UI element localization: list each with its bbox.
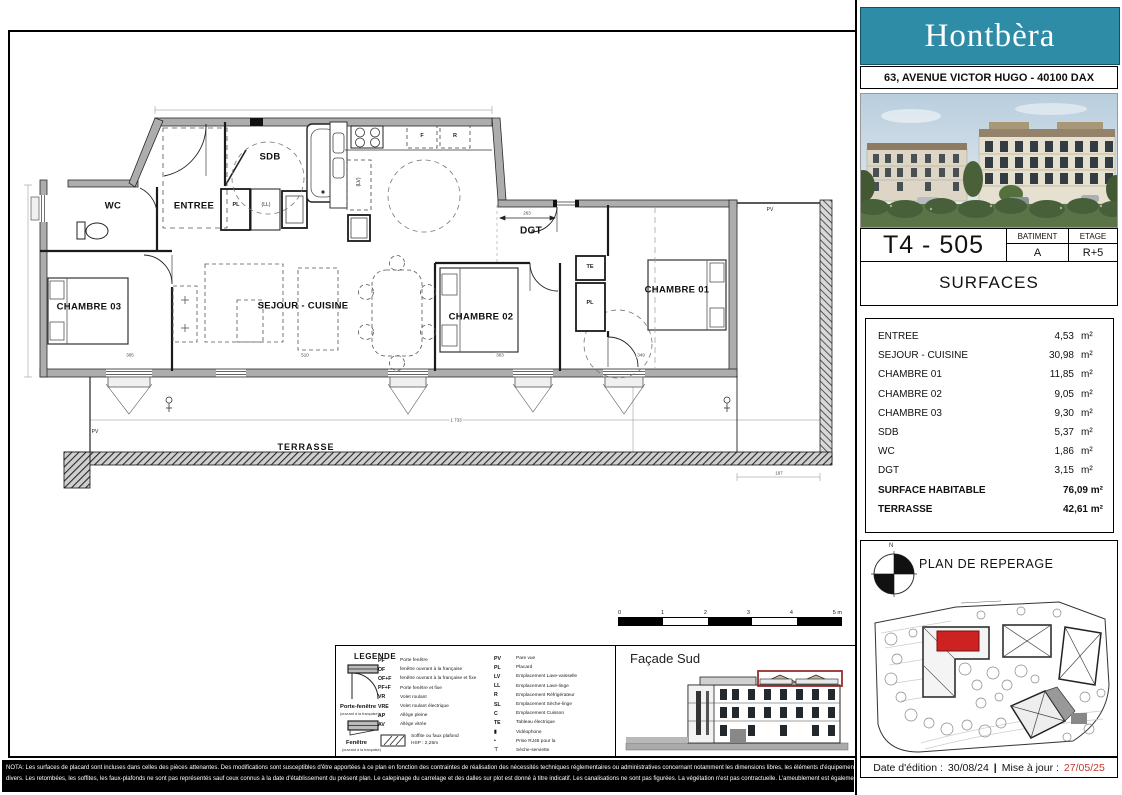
legend-item: AV Allège vitrée [378,720,493,729]
legend-abbr: OF+F [378,676,400,682]
surface-room-label: WC [878,446,1036,457]
dim-510: 510 [300,353,310,358]
surface-row: CHAMBRE 02 9,05 m² [878,385,1103,404]
tag-r: R [453,133,457,139]
legend-item: R Emplacement Réfrigérateur [494,691,612,700]
surface-room-label: CHAMBRE 01 [878,369,1036,380]
surface-value: 1,86 [1036,446,1074,457]
surface-row: SDB 5,37 m² [878,423,1103,442]
compass-icon [869,549,919,599]
legend-label: fenêtre ouvrant à la française [400,667,462,672]
scale-bar-segments [618,617,842,626]
surface-unit: m² [1074,369,1103,380]
surface-room-label: SDB [878,427,1036,438]
surface-value: 11,85 [1036,369,1074,380]
surface-unit: m² [1074,389,1103,400]
surface-unit: m² [1074,427,1103,438]
room-label-wc: WC [105,201,121,212]
legend-label: Volet roulant électrique [400,704,449,709]
tag-pl-sdb: PL [232,202,239,208]
legend-label: Sèche-serviette [516,748,549,753]
nota-line-2: divers. Les retombées, les soffites, les… [6,774,850,785]
facade-drawing [618,669,853,757]
legend-abbr: AV [378,722,400,728]
soffite-label: Soffite ou faux plafond [411,734,459,740]
legend-item: SL Emplacement Sèche-linge [494,700,612,709]
legend-label: Tableau électrique [516,720,555,725]
facade-section: Façade Sud [615,645,855,758]
floor-plan-drawing [0,0,855,600]
tag-pv-left: PV [92,429,99,435]
room-label-dgt: DGT [520,226,542,237]
legend-label: Volet roulant [400,695,427,700]
surface-value: 9,30 [1036,408,1074,419]
surface-value: 4,53 [1036,331,1074,342]
surfaces-totals: SURFACE HABITABLE 76,09 m² TERRASSE 42,6… [878,481,1103,519]
legend: LEGENDE Porte-fenêtre (ouvrant à la fran… [335,645,616,758]
legend-label: Emplacement Cuisson [516,711,564,716]
surface-row: DGT 3,15 m² [878,461,1103,480]
nota-line-1: NOTA: Les surfaces de placard sont inclu… [6,763,850,774]
legend-item: LV Emplacement Lave-vaisselle [494,672,612,681]
surface-row: CHAMBRE 03 9,30 m² [878,404,1103,423]
fenetre-sub: (ouvrant à la française) [342,748,381,752]
legend-abbr: ⊤ [494,747,516,753]
batiment-header: BATIMENT [1007,229,1069,244]
legend-label: fenêtre ouvrant à la française et fixe [400,676,476,681]
facade-title: Façade Sud [630,651,700,666]
legend-soffite: Soffite ou faux plafond HSP : 2,25m [380,734,459,747]
legend-label: Prise RJ45 pour la [516,739,555,744]
room-label-sejour: SEJOUR - CUISINE [258,301,349,312]
room-label-chambre01: CHAMBRE 01 [645,285,710,296]
legend-label: Allège vitrée [400,722,426,727]
legend-item: OF+F fenêtre ouvrant à la française et f… [378,674,493,683]
legend-item: PF Porte fenêtre [378,656,493,665]
dim-197: 197 [774,471,784,476]
surface-value: 3,15 [1036,465,1074,476]
legend-abbr: AP [378,713,400,719]
legend-item: PL Placard [494,663,612,672]
surface-room-label: SEJOUR - CUISINE [878,350,1036,361]
update-date: 27/05/25 [1064,762,1105,774]
surface-total-value: 76,09 m² [1043,485,1103,496]
brand-logo: Hontbèra [925,18,1056,55]
tag-pv-right: PV [767,207,774,213]
surface-value: 30,98 [1036,350,1074,361]
legend-item: PV Pare vue [494,654,612,663]
surface-room-label: CHAMBRE 02 [878,389,1036,400]
tag-lv: (LV) [356,177,362,186]
dim-305: 305 [125,353,135,358]
legend-abbr: VRE [378,704,400,710]
legend-label: Placard [516,665,532,670]
scale-tick-label: 2 [704,610,707,616]
surface-unit: m² [1074,350,1103,361]
legend-abbr: TE [494,720,516,726]
building-photo [860,93,1118,228]
legend-column-2: PV Pare vue PL Placard LV Emplacement La… [494,654,612,755]
surface-total-row: TERRASSE 42,61 m² [878,500,1103,519]
scale-bar: 012345 m [618,610,842,626]
legend-abbr: R [494,692,516,698]
edition-label: Date d'édition : [873,762,943,774]
surface-row: CHAMBRE 01 11,85 m² [878,365,1103,384]
room-label-sdb: SDB [260,152,281,163]
room-label-terrasse: TERRASSE [277,442,334,452]
soffite-hatch-icon [380,734,406,747]
legend-abbr: SL [494,702,516,708]
reperage-title: PLAN DE REPERAGE [919,557,1053,571]
surface-total-label: SURFACE HABITABLE [878,485,1043,496]
legend-abbr: LL [494,683,516,689]
unit-code: T4 - 505 [861,229,1007,261]
dim-263: 263 [522,211,532,216]
legend-label: Emplacement Lave-vaisselle [516,674,577,679]
legend-item: VRE Volet roulant électrique [378,702,493,711]
site-plan [861,593,1117,755]
surface-room-label: DGT [878,465,1036,476]
room-label-entree: ENTREE [174,201,214,212]
fenetre-label: Fenêtre [346,740,367,746]
soffite-sub: HSP : 2,25m [411,741,459,747]
address-bar: 63, AVENUE VICTOR HUGO - 40100 DAX [860,66,1118,89]
surface-value: 9,05 [1036,389,1074,400]
room-label-chambre03: CHAMBRE 03 [57,302,122,313]
surface-unit: m² [1074,331,1103,342]
surface-total-label: TERRASSE [878,504,1043,515]
legend-label: Pare vue [516,656,535,661]
dim-303: 303 [495,353,505,358]
tag-pl-dgt: PL [586,300,593,306]
scale-tick-label: 0 [618,610,621,616]
legend-abbr: VR [378,694,400,700]
legend-item: TE Tableau électrique [494,718,612,727]
scale-tick-label: 1 [661,610,664,616]
address-text: 63, AVENUE VICTOR HUGO - 40100 DAX [884,72,1094,84]
surface-unit: m² [1074,465,1103,476]
legend-item: VR Volet roulant [378,693,493,702]
legend-abbr: PF+F [378,685,400,691]
etage-header: ETAGE [1069,229,1117,244]
legend-column-1: PF Porte fenêtre OF fenêtre ouvrant à la… [378,656,493,730]
room-label-chambre02: CHAMBRE 02 [449,312,514,323]
legend-label: Allège pleine [400,713,427,718]
legend-item: LL Emplacement Lave-linge [494,682,612,691]
legend-label: Emplacement Sèche-linge [516,702,572,707]
batiment-value: A [1007,244,1069,261]
surface-total-row: SURFACE HABITABLE 76,09 m² [878,481,1103,500]
surface-room-label: ENTREE [878,331,1036,342]
scale-tick-label: 4 [790,610,793,616]
scale-tick-label: 5 m [833,610,842,616]
surface-row: ENTREE 4,53 m² [878,327,1103,346]
unit-header: T4 - 505 BATIMENT ETAGE A R+5 [860,228,1118,262]
surface-value: 5,37 [1036,427,1074,438]
surface-row: WC 1,86 m² [878,442,1103,461]
surfaces-table: ENTREE 4,53 m² SEJOUR - CUISINE 30,98 m²… [865,318,1114,533]
scale-tick-label: 3 [747,610,750,616]
floor-plan-svg [0,0,855,600]
reperage-section: N PLAN DE REPERAGE [860,540,1118,757]
porte-fenetre-symbol [346,663,380,701]
legend-abbr: C [494,711,516,717]
building-photo-art [861,94,1118,228]
porte-fenetre-label: Porte-fenêtre [340,704,376,710]
legend-item: ▮ Vidéophone [494,728,612,737]
legend-abbr: ▪ [494,738,516,744]
legend-abbr: PL [494,665,516,671]
update-label: Mise à jour : [1002,762,1059,774]
edition-date: 30/08/24 [948,762,989,774]
legend-abbr: OF [378,667,400,673]
date-strip: Date d'édition : 30/08/24 | Mise à jour … [860,757,1118,778]
surfaces-title: SURFACES [860,261,1118,306]
legend-abbr: LV [494,674,516,680]
surface-unit: m² [1074,446,1103,457]
legend-label: Vidéophone [516,730,542,735]
porte-fenetre-sub: (ouvrant à la française) [340,712,379,716]
legend-item: OF fenêtre ouvrant à la française [378,665,493,674]
date-separator: | [994,762,997,774]
etage-value: R+5 [1069,244,1117,261]
legend-item: PF+F Porte fenêtre et fixe [378,684,493,693]
surface-total-value: 42,61 m² [1043,504,1103,515]
nota-strip: NOTA: Les surfaces de placard sont inclu… [2,760,854,792]
legend-item: C Emplacement Cuisson [494,709,612,718]
legend-label: Porte fenêtre et fixe [400,686,442,691]
tag-te: TE [586,264,593,270]
legend-label: Emplacement Réfrigérateur [516,693,575,698]
legend-abbr: PF [378,658,400,664]
surfaces-rows: ENTREE 4,53 m² SEJOUR - CUISINE 30,98 m²… [878,327,1103,481]
floor-plan-sheet: WC ENTREE SDB SEJOUR - CUISINE CHAMBRE 0… [0,0,1122,795]
sidebar: Hontbèra 63, AVENUE VICTOR HUGO - 40100 … [855,0,1122,795]
legend-label: Emplacement Lave-linge [516,684,569,689]
legend-label: Porte fenêtre [400,658,428,663]
surface-room-label: CHAMBRE 03 [878,408,1036,419]
fenetre-symbol [346,719,380,737]
tag-ll: (LL) [262,202,271,208]
legend-abbr: ▮ [494,729,516,735]
legend-item: ▪ Prise RJ45 pour la [494,737,612,746]
tag-f: F [420,133,423,139]
legend-abbr: PV [494,656,516,662]
legend-item: AP Allège pleine [378,711,493,720]
surface-unit: m² [1074,408,1103,419]
legend-item: ⊤ Sèche-serviette [494,746,612,755]
dim-1733: 1 733 [449,418,462,423]
dim-349: 349 [636,353,646,358]
surface-row: SEJOUR - CUISINE 30,98 m² [878,346,1103,365]
brand-box: Hontbèra [860,7,1120,65]
scale-bar-ticks: 012345 m [618,610,842,616]
